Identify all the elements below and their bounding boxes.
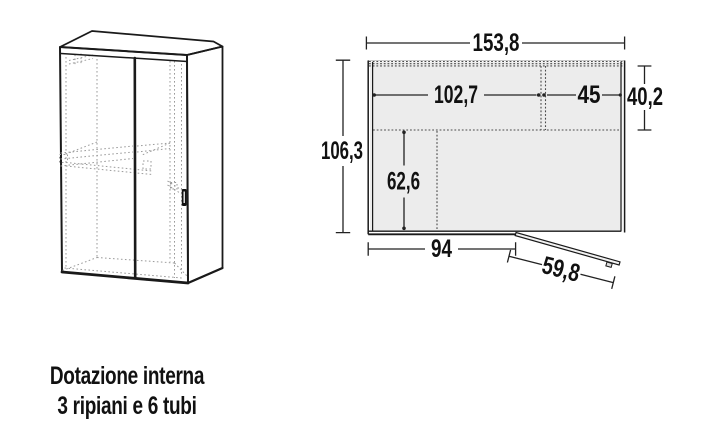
dim-lower-interior-depth-label: 62,6 [387,168,420,196]
dim-overall-depth: 106,3 [321,60,363,232]
side-bottom-edge [188,268,223,283]
dim-overall-width-label: 153,8 [473,29,520,57]
dim-front-wall-length: 94 [368,235,515,263]
plan-top-view: 153,8 106,3 102,7 45 40,2 62,6 9 [321,29,663,289]
dim-overall-width: 153,8 [366,29,624,57]
dim-right-interior-width-label: 45 [578,81,601,109]
caption-line-2: 3 ripiani e 6 tubi [47,391,207,421]
door-handle-knob [606,262,612,267]
dim-upper-depth-label: 40,2 [627,83,663,111]
caption: Dotazione interna 3 ripiani e 6 tubi [47,361,207,421]
dim-upper-depth: 40,2 [627,66,663,130]
caption-line-1: Dotazione interna [47,361,207,391]
dim-front-wall-length-label: 94 [431,235,452,263]
dim-left-interior-width-label: 102,7 [434,81,478,109]
wardrobe-front-face [60,47,188,283]
wardrobe-side-panel [187,47,223,284]
wardrobe-door-handle [182,189,187,206]
dim-overall-depth-label: 106,3 [321,137,363,165]
page: 153,8 106,3 102,7 45 40,2 62,6 9 [0,0,704,432]
dim-open-door-width-label: 59,8 [539,251,583,288]
hidden-interior-lines [60,54,188,281]
wardrobe-3d-view [60,31,223,283]
